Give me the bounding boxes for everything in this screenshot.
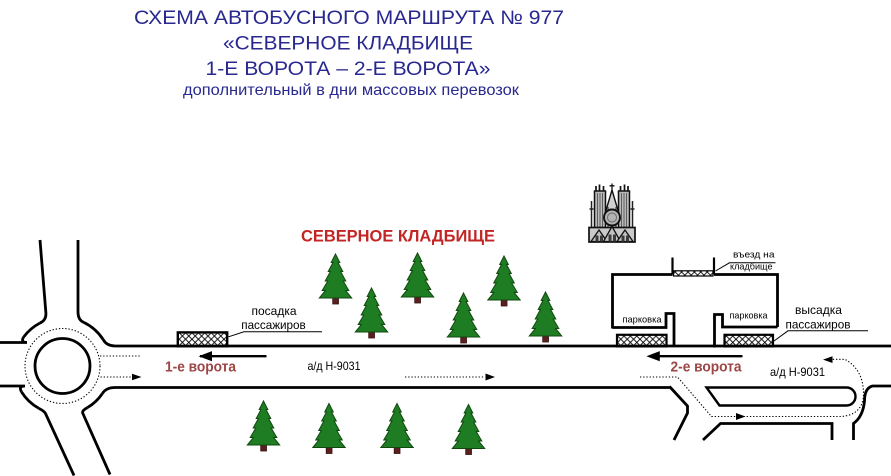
svg-text:СЕВЕРНОЕ КЛАДБИЩЕ: СЕВЕРНОЕ КЛАДБИЩЕ <box>301 227 495 246</box>
svg-text:парковка: парковка <box>730 311 769 322</box>
svg-text:а/д Н-9031: а/д Н-9031 <box>308 359 361 373</box>
svg-text:парковка: парковка <box>623 315 663 326</box>
svg-text:пассажиров: пассажиров <box>786 318 851 332</box>
svg-text:въезд на: въезд на <box>733 249 775 260</box>
svg-text:а/д Н-9031: а/д Н-9031 <box>770 365 825 379</box>
svg-text:кладбище: кладбище <box>730 262 773 273</box>
svg-text:2-е ворота: 2-е ворота <box>671 359 743 376</box>
svg-text:дополнительный в дни массовых: дополнительный в дни массовых перевозок <box>183 82 519 99</box>
svg-text:пассажиров: пассажиров <box>241 318 306 332</box>
svg-text:«СЕВЕРНОЕ КЛАДБИЩЕ: «СЕВЕРНОЕ КЛАДБИЩЕ <box>223 32 473 54</box>
svg-text:высадка: высадка <box>795 303 842 317</box>
svg-text:посадка: посадка <box>252 304 297 318</box>
svg-text:СХЕМА АВТОБУСНОГО МАРШРУТА № 9: СХЕМА АВТОБУСНОГО МАРШРУТА № 977 <box>134 7 564 29</box>
svg-text:1-е ворота: 1-е ворота <box>165 359 237 376</box>
svg-text:1-Е ВОРОТА – 2-Е ВОРОТА»: 1-Е ВОРОТА – 2-Е ВОРОТА» <box>206 58 491 80</box>
